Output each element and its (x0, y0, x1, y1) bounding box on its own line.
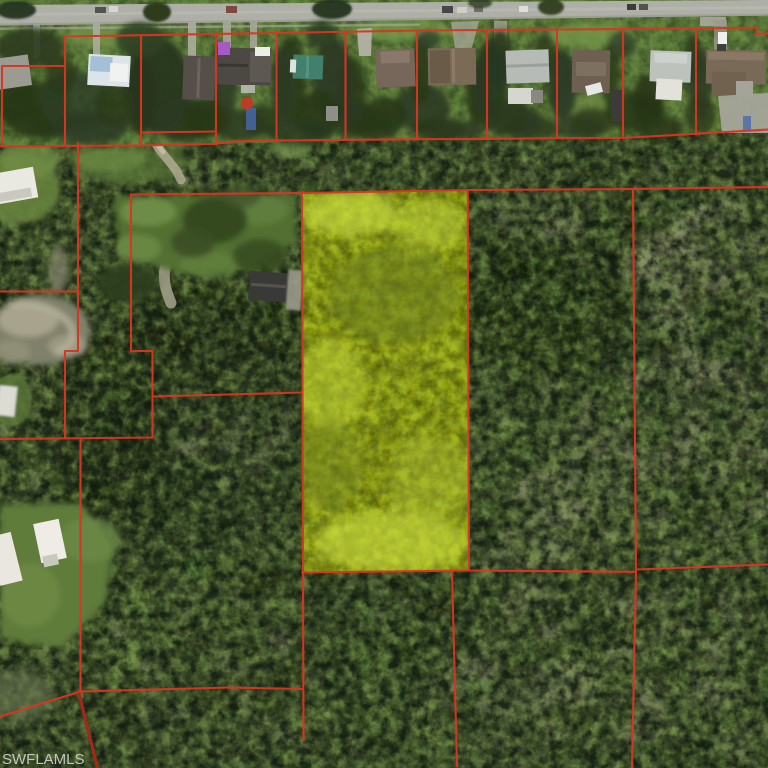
svg-text:SWFLAMLS: SWFLAMLS (2, 751, 85, 768)
